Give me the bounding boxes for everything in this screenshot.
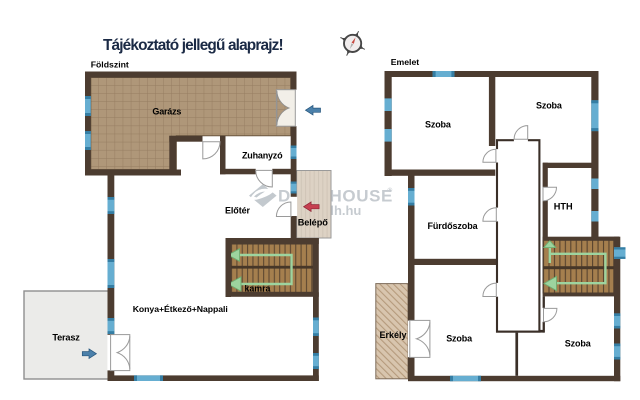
svg-text:Szoba: Szoba <box>536 100 563 110</box>
svg-text:Fürdőszoba: Fürdőszoba <box>428 221 479 231</box>
svg-text:Emelet: Emelet <box>391 57 420 67</box>
svg-text:kamra: kamra <box>245 284 271 294</box>
svg-text:Garázs: Garázs <box>152 107 181 117</box>
svg-text:Belépő: Belépő <box>298 217 329 227</box>
svg-text:Terasz: Terasz <box>52 333 80 343</box>
svg-text:Erkély: Erkély <box>380 330 407 340</box>
svg-text:HTH: HTH <box>554 202 573 212</box>
svg-text:Szoba: Szoba <box>425 119 452 129</box>
svg-text:Földszint: Földszint <box>91 60 129 70</box>
svg-text:®: ® <box>388 186 393 194</box>
svg-text:Szoba: Szoba <box>565 338 592 348</box>
svg-text:Előtér: Előtér <box>225 206 251 216</box>
svg-text:Konya+Étkező+Nappali: Konya+Étkező+Nappali <box>133 304 228 314</box>
svg-text:Tájékoztató jellegű alaprajz!: Tájékoztató jellegű alaprajz! <box>103 37 283 54</box>
svg-text:Szoba: Szoba <box>446 334 473 344</box>
svg-text:Zuhanyzó: Zuhanyzó <box>242 151 283 161</box>
